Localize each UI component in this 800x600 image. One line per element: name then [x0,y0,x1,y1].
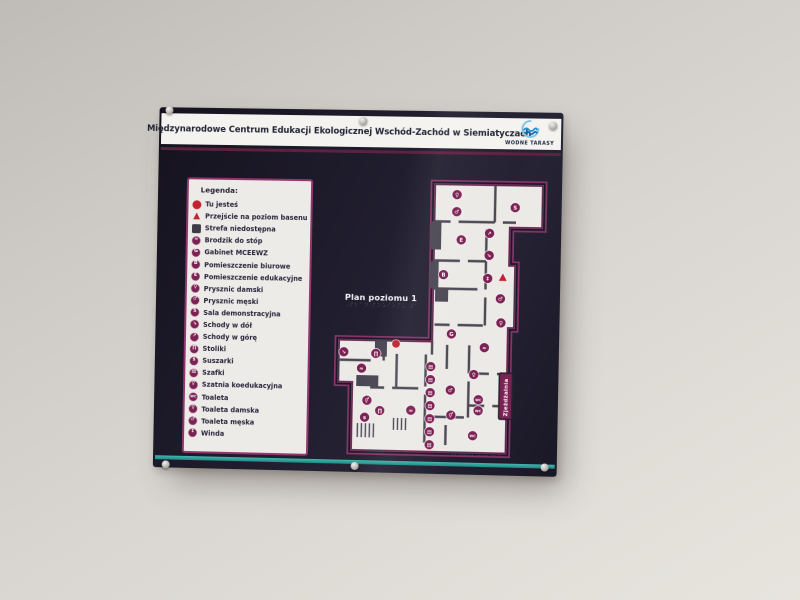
legend-item-list: Tu jesteś▲Przejście na poziom basenuStre… [187,198,308,441]
legend-item-label: Schody w dół [203,321,252,330]
plan-label-block: Plan poziomu 1 ⠠⠏⠇⠁⠝ ⠏⠕⠵⠊⠕⠍⠥ ⠼⠁ [345,293,420,311]
you-are-here-icon [392,340,401,349]
legend-item-label: Toaleta męska [201,417,254,426]
legend-item-label: Gabinet MCEEWZ [204,249,268,258]
room-icon-glyph: ♀ [499,321,503,327]
room-icon-glyph: s [363,415,366,421]
wave-swirl-icon [520,119,540,138]
room-icon-glyph: ▤ [427,417,432,423]
you-are-here-icon [192,200,201,209]
toilet-women-icon: ♀ [188,404,197,413]
restricted-zone-icon [192,224,201,233]
room-icon-glyph: ∏ [374,351,378,357]
education-room-icon: E [191,272,200,281]
room-icon-glyph: ≈ [482,345,487,351]
legend-item-label: Pomieszczenie edukacyjne [204,273,303,283]
legend-item-label: Toaleta damska [201,405,259,414]
toilet-men-icon: ♂ [188,416,197,425]
mounting-screw [351,462,359,470]
room-icon-glyph: WC [475,398,482,402]
room-icon-glyph: ↗ [487,231,492,237]
dryers-icon: s [189,356,198,365]
room-icon-glyph: ↘ [342,350,346,356]
legend-item-label: Prysznic damski [204,285,264,294]
room-icon-glyph: ▤ [427,403,432,409]
changing-room-icon: ⚥ [189,380,198,389]
room-icon-glyph: ♂ [454,210,459,216]
legend-header: Legenda: [201,185,308,196]
room-icon-glyph: ♂ [498,297,503,303]
room-icon-glyph: B [441,272,445,278]
pool-passage-icon: ▲ [192,212,201,221]
legend-item-label: Schody w górę [203,333,257,342]
stairs-up-icon: ↗ [190,332,199,341]
slide-tab: Zjeżdżalnia [499,373,513,419]
legend-item-label: Szafki [202,369,225,377]
room-icon-glyph: ▤ [428,390,433,396]
room-icon-glyph: ≈ [359,366,363,372]
legend-item-label: Stoliki [203,345,227,353]
sign-panel: Międzynarodowe Centrum Edukacji Ekologic… [153,107,564,477]
room-icon-glyph: WC [469,434,476,438]
shower-men-icon: ♂ [191,296,200,305]
room-icon-glyph: ▤ [428,377,433,383]
legend-item-label: Sala demonstracyjna [203,309,280,319]
room-icon-glyph: ∏ [378,408,382,414]
floor-plan: Zjeżdżalnia ♀♂S↗E↘B↕♂♀G≈↘∏≈▤▤▤▤▤▤▤♀♂WCWC… [327,175,561,460]
room-icon-glyph: ▤ [427,430,432,436]
legend-item-label: Szatnia koedukacyjna [202,381,283,391]
legend-item-label: Przejście na poziom basenu [205,213,307,223]
room-icon-glyph: ↕ [485,276,490,282]
toilet-icon: WC [189,392,198,401]
room-icon-glyph: G [449,332,453,338]
legend-item-label: Prysznic męski [203,297,258,306]
mounting-screw [540,463,548,471]
wall-background: Międzynarodowe Centrum Edukacji Ekologic… [0,0,800,600]
room-icon-glyph: E [459,238,463,244]
room-icon-glyph: ↘ [487,253,492,259]
legend-item-label: Pomieszczenie biurowe [204,261,290,271]
room-icon-glyph: ⚥ [364,397,369,404]
foot-bath-icon: ≈ [192,236,201,245]
elevator-icon: ↕ [188,428,197,437]
legend-item-label: Tu jesteś [205,200,238,209]
mounting-screw [162,460,170,468]
legend-item-label: Suszarki [202,357,233,366]
office-room-icon: B [191,260,200,269]
legend-item-label: Brodzik do stóp [205,237,263,246]
tables-icon: ∏ [190,344,199,353]
room-icon-glyph: ▤ [427,443,432,449]
legend-item-label: Winda [201,429,224,438]
room-icon-glyph: ♀ [472,372,476,378]
legend-item: ↕Winda [187,427,303,442]
lockers-icon: ▤ [189,368,198,377]
room-icon-glyph: ⚥ [448,412,453,419]
room-icon-glyph: S [513,205,517,211]
room-icon-glyph: ≈ [409,408,413,414]
legend-item-label: Strefa niedostępna [205,225,276,234]
demo-room-icon: S [190,308,199,317]
logo-text: WODNE TARASY [501,142,558,148]
stairs-down-icon: ↘ [190,320,199,329]
slide-label: Zjeżdżalnia [503,378,510,416]
shower-women-icon: ♀ [191,284,200,293]
legend-card: Legenda: Tu jesteś▲Przejście na poziom b… [182,177,313,456]
legend-item-label: Toaleta [202,393,229,402]
room-icon-glyph: ♂ [448,388,453,394]
office-mceewz-icon: G [191,248,200,257]
room-icon-glyph: ♀ [455,192,459,198]
room-icon-glyph: WC [475,409,482,413]
footer-small-print: ·· ······ ····· ·· · [452,453,501,459]
room-icon-glyph: ▤ [428,364,433,370]
